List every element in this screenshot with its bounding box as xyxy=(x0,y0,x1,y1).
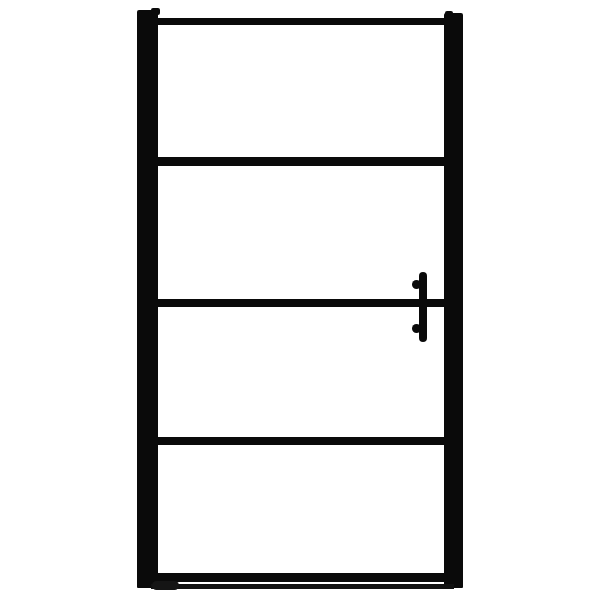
glass-panel-3 xyxy=(158,307,444,437)
glass-panel-1 xyxy=(158,25,444,157)
stile-foot-shadow xyxy=(152,581,179,590)
handle-mount-top xyxy=(412,280,421,289)
door-left-stile xyxy=(137,10,158,588)
door-intermediate-rail-2 xyxy=(156,299,446,307)
right-stile-top-cap xyxy=(445,11,453,17)
door-right-stile xyxy=(444,13,463,588)
product-photo xyxy=(0,0,600,600)
floor-threshold-strip xyxy=(151,584,454,589)
glass-panel-2 xyxy=(158,166,444,299)
handle-mount-bottom xyxy=(412,324,421,333)
door-bottom-rail xyxy=(156,573,446,582)
door-intermediate-rail-1 xyxy=(156,157,446,166)
door-intermediate-rail-3 xyxy=(156,437,446,445)
glass-panel-4 xyxy=(158,445,444,573)
door-top-rail xyxy=(156,18,446,25)
left-stile-top-cap xyxy=(151,8,160,15)
